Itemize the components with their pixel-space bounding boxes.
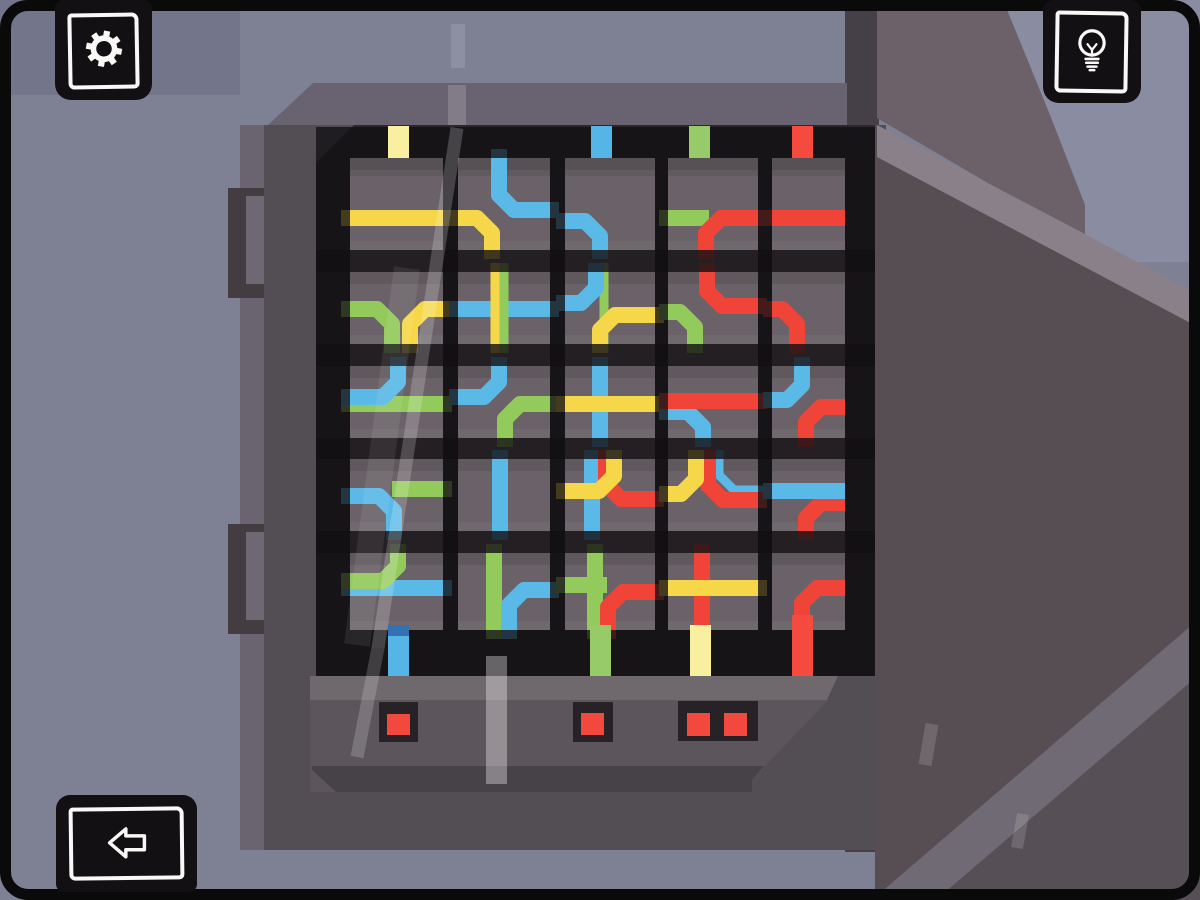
- indicator-led-red: [687, 713, 710, 736]
- column-gap: [550, 158, 565, 630]
- top-wire-stub: [591, 126, 612, 158]
- wire-tile-r3-c4[interactable]: [668, 366, 758, 438]
- wire-end-tip: [504, 613, 513, 627]
- indicator-led-red: [387, 714, 410, 735]
- wire-tile-r3-c3[interactable]: [565, 366, 655, 438]
- column-gap: [655, 158, 668, 630]
- fusebox-board: [0, 0, 1200, 900]
- wire-tile-r4-c4[interactable]: [668, 459, 758, 531]
- wire-end-tip: [490, 613, 499, 627]
- column-gap: [758, 158, 772, 630]
- panel-top-strip: [310, 676, 838, 702]
- wire-tile-r5-c4[interactable]: [668, 553, 758, 630]
- back-button[interactable]: [56, 795, 197, 892]
- wire-tile-r4-c3[interactable]: [565, 459, 655, 531]
- wire-tile-r2-c2[interactable]: [458, 272, 550, 344]
- bottom-wire-stub: [792, 615, 813, 684]
- wire-tile-r1-c5[interactable]: [772, 158, 845, 250]
- glass-reflection: [451, 24, 465, 68]
- glass-reflection: [448, 85, 466, 125]
- wire-tile-r3-c5[interactable]: [772, 366, 845, 438]
- wire-end-tip: [600, 613, 616, 626]
- grid-left-margin: [316, 158, 350, 630]
- row-separator: [316, 438, 875, 459]
- game-screen: [0, 0, 1200, 900]
- wire-end-tip: [694, 613, 710, 626]
- wire-tile-r4-c2[interactable]: [458, 459, 550, 531]
- hint-button[interactable]: [1043, 0, 1141, 103]
- wire-tile-r1-c3[interactable]: [565, 158, 655, 250]
- grid-right-margin: [845, 158, 875, 630]
- top-wire-stub: [388, 126, 409, 158]
- wire-tile-r2-c3[interactable]: [565, 272, 655, 344]
- settings-button[interactable]: [55, 0, 152, 100]
- top-wire-stub: [689, 126, 710, 158]
- panel-low: [312, 766, 764, 792]
- indicator-led-red: [724, 713, 747, 736]
- bottom-wire-stub: [690, 625, 711, 684]
- wire-tile-r2-c4[interactable]: [668, 272, 758, 344]
- wire-tile-r3-c2[interactable]: [458, 366, 550, 438]
- wire-tile-r1-c2[interactable]: [458, 158, 550, 250]
- top-wire-stub: [792, 126, 813, 158]
- indicator-led-red: [581, 713, 604, 735]
- glass-reflection: [486, 656, 507, 784]
- wire-tile-r2-c5[interactable]: [772, 272, 845, 344]
- wire-tile-r1-c1[interactable]: [350, 158, 443, 250]
- back-arrow-icon: [95, 813, 159, 871]
- gear-icon: [73, 18, 135, 80]
- bottom-wire-stub: [590, 625, 611, 684]
- wire-tile-r1-c4[interactable]: [668, 158, 758, 250]
- wire-tile-r4-c5[interactable]: [772, 459, 845, 531]
- glass-reflection: [925, 724, 932, 765]
- bottom-stub-cap: [388, 625, 409, 636]
- glass-reflection: [1017, 814, 1023, 848]
- box-top-face: [268, 83, 847, 125]
- lightbulb-icon: [1060, 15, 1124, 85]
